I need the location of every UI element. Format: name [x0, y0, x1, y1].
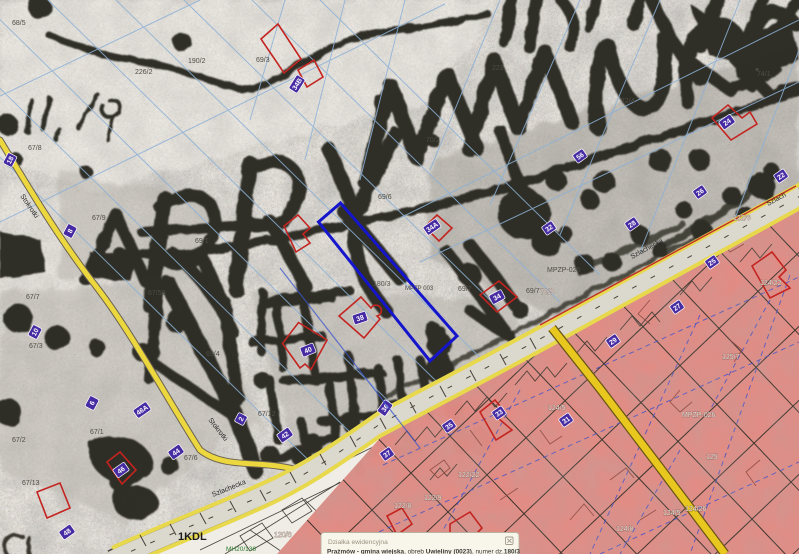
svg-text:124/26: 124/26 — [685, 506, 707, 513]
svg-text:68/5: 68/5 — [12, 20, 26, 27]
svg-text:70/9: 70/9 — [540, 289, 554, 296]
svg-text:122/22: 122/22 — [458, 472, 480, 479]
svg-text:67/1: 67/1 — [90, 429, 104, 436]
svg-text:120/8: 120/8 — [274, 532, 292, 539]
svg-text:125/7: 125/7 — [722, 354, 740, 361]
svg-text:67/7: 67/7 — [26, 294, 40, 301]
svg-text:74/1: 74/1 — [757, 71, 771, 78]
svg-text:69/7: 69/7 — [458, 286, 472, 293]
svg-text:70/2: 70/2 — [426, 137, 440, 144]
svg-text:MPZP-026: MPZP-026 — [547, 267, 581, 274]
svg-text:67/50: 67/50 — [148, 290, 166, 297]
svg-text:MPZP 003: MPZP 003 — [405, 286, 434, 292]
svg-text:67/6: 67/6 — [184, 455, 198, 462]
svg-text:226/2: 226/2 — [135, 69, 153, 76]
svg-text:67/13: 67/13 — [22, 480, 40, 487]
svg-text:69/6: 69/6 — [378, 194, 392, 201]
svg-text:69/3: 69/3 — [256, 57, 270, 64]
svg-text:72/4: 72/4 — [621, 98, 635, 105]
svg-text:67/8: 67/8 — [28, 145, 42, 152]
svg-text:124/8: 124/8 — [616, 526, 634, 533]
svg-text:125: 125 — [706, 454, 718, 461]
svg-text:Działka ewidencyjna: Działka ewidencyjna — [328, 539, 388, 546]
svg-text:67/12: 67/12 — [258, 411, 276, 418]
svg-text:124/22: 124/22 — [760, 280, 782, 287]
svg-text:67/9: 67/9 — [92, 215, 106, 222]
svg-text:MH20/136: MH20/136 — [226, 546, 256, 553]
svg-text:67/3: 67/3 — [29, 343, 43, 350]
svg-text:190/2: 190/2 — [188, 58, 206, 65]
svg-text:122/9: 122/9 — [424, 495, 442, 502]
svg-text:221: 221 — [492, 65, 504, 72]
svg-text:MPZP-026: MPZP-026 — [682, 412, 716, 419]
svg-text:Prażmów - gmina wiejska, obręb: Prażmów - gmina wiejska, obręb Uwieliny … — [327, 549, 520, 554]
svg-text:124/5: 124/5 — [663, 510, 681, 517]
svg-text:1KDL: 1KDL — [178, 531, 207, 543]
svg-text:69/4: 69/4 — [206, 351, 220, 358]
svg-text:180/3: 180/3 — [373, 281, 391, 288]
svg-text:67/2: 67/2 — [12, 437, 26, 444]
svg-text:69/7: 69/7 — [526, 288, 540, 295]
svg-text:122/8: 122/8 — [394, 503, 412, 510]
svg-text:122/6: 122/6 — [733, 215, 751, 222]
svg-text:124/5: 124/5 — [548, 405, 566, 412]
svg-text:69/1: 69/1 — [195, 238, 209, 245]
